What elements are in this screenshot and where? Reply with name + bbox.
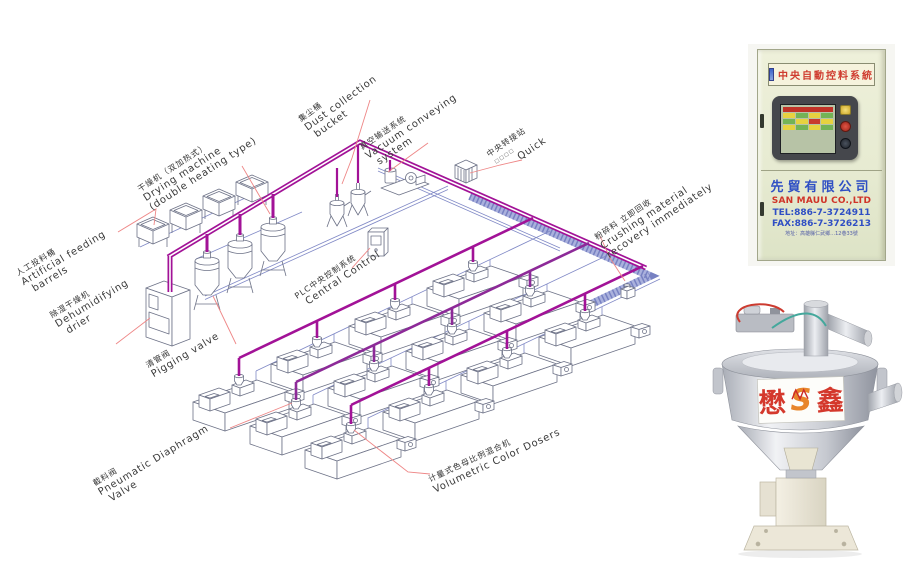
label-en: Vacuum conveying bbox=[364, 92, 459, 161]
page: 人工投料桶 Artificial feeding barrels 干燥机（双加热… bbox=[0, 0, 912, 562]
indicator-dark-button bbox=[840, 138, 851, 149]
company-fax: FAX:886-7-3726213 bbox=[758, 219, 885, 230]
brand-char-right: 鑫 bbox=[816, 384, 844, 417]
dust-collector-cyclone bbox=[348, 183, 371, 216]
label-en: Crushing material bbox=[599, 185, 691, 252]
pipe-end bbox=[894, 383, 902, 402]
company-text-block: 先貿有限公司 SAN MAUU CO.,LTD TEL:886-7-372491… bbox=[758, 180, 885, 237]
label-crushing-material-recovery: 粉碎料 立即回收 Crushing material recovery imme… bbox=[593, 163, 715, 260]
company-name-zh: 先貿有限公司 bbox=[758, 180, 885, 196]
dust-collector-cyclone bbox=[327, 194, 350, 227]
door-seam bbox=[761, 170, 882, 171]
feeding-barrel bbox=[170, 203, 202, 233]
label-vacuum-conveying-system: 真空输送系统 Vacuum conveying system bbox=[358, 83, 466, 170]
company-name-en: SAN MAUU CO.,LTD bbox=[758, 196, 885, 207]
label-dust-collection-bucket: 集尘桶 Dust collection bucket bbox=[296, 65, 385, 142]
lid-inner bbox=[742, 352, 858, 372]
inlet-stub-pipe bbox=[828, 314, 868, 346]
sight-window bbox=[784, 448, 818, 470]
pipe-opening bbox=[804, 301, 828, 308]
label-en: Volumetric Color Dosers bbox=[432, 427, 563, 496]
clamp-left bbox=[713, 368, 723, 394]
pipe-end bbox=[864, 331, 872, 347]
company-address: 地址：高雄縣仁武鄉…12巷33號 bbox=[758, 231, 885, 237]
shadow bbox=[738, 550, 862, 558]
indicator-red-button bbox=[840, 121, 851, 132]
label-central-transfer-station: 中央转接站 □□□□ Quick bbox=[485, 119, 549, 176]
label-en: Quick bbox=[516, 135, 549, 162]
hopper-loader-image: 懋 鑫 S bbox=[700, 298, 908, 560]
cabinet-body: 中央自動控料系統 先貿有限公司 SAN MAUU CO.,LTD TEL bbox=[757, 49, 886, 261]
cabinet-sign: 中央自動控料系統 bbox=[768, 63, 875, 86]
label-artificial-feeding-barrels: 人工投料桶 Artificial feeding barrels bbox=[14, 220, 114, 298]
label-en: Pneumatic Diaphragm bbox=[97, 423, 211, 498]
screen-button-grid bbox=[783, 113, 833, 130]
sign-logo bbox=[769, 68, 774, 81]
top-inlet-pipe bbox=[804, 304, 828, 356]
feeding-barrel bbox=[137, 217, 169, 247]
hmi-panel bbox=[772, 96, 858, 160]
brand-label: 懋 鑫 S bbox=[757, 376, 844, 423]
drying-hopper bbox=[194, 251, 220, 310]
company-tel: TEL:886-7-3724911 bbox=[758, 208, 885, 219]
touch-screen bbox=[780, 104, 836, 154]
label-drying-machine: 干燥机（双加热式） Drying machine (double heating… bbox=[136, 117, 259, 213]
base-stand bbox=[744, 478, 858, 550]
outlet-flange bbox=[786, 470, 816, 478]
control-cabinet-photo: 中央自動控料系統 先貿有限公司 SAN MAUU CO.,LTD TEL bbox=[748, 44, 895, 266]
brand-logo-s: S bbox=[790, 383, 813, 419]
door-handle bbox=[760, 114, 764, 128]
feeding-barrel bbox=[203, 189, 235, 219]
screen-title-bar bbox=[783, 107, 833, 112]
brand-char-left: 懋 bbox=[758, 388, 786, 420]
drying-hopper bbox=[260, 217, 286, 276]
cabinet-sign-text: 中央自動控料系統 bbox=[778, 67, 874, 82]
central-transfer-station bbox=[455, 160, 477, 183]
equipment bbox=[137, 160, 650, 479]
indicator-yellow bbox=[840, 105, 851, 115]
label-pneumatic-diaphragm-valve: 截料阀 Pneumatic Diaphragm Valve bbox=[91, 414, 217, 508]
hopper-loader-photo: 懋 鑫 S bbox=[700, 298, 908, 560]
